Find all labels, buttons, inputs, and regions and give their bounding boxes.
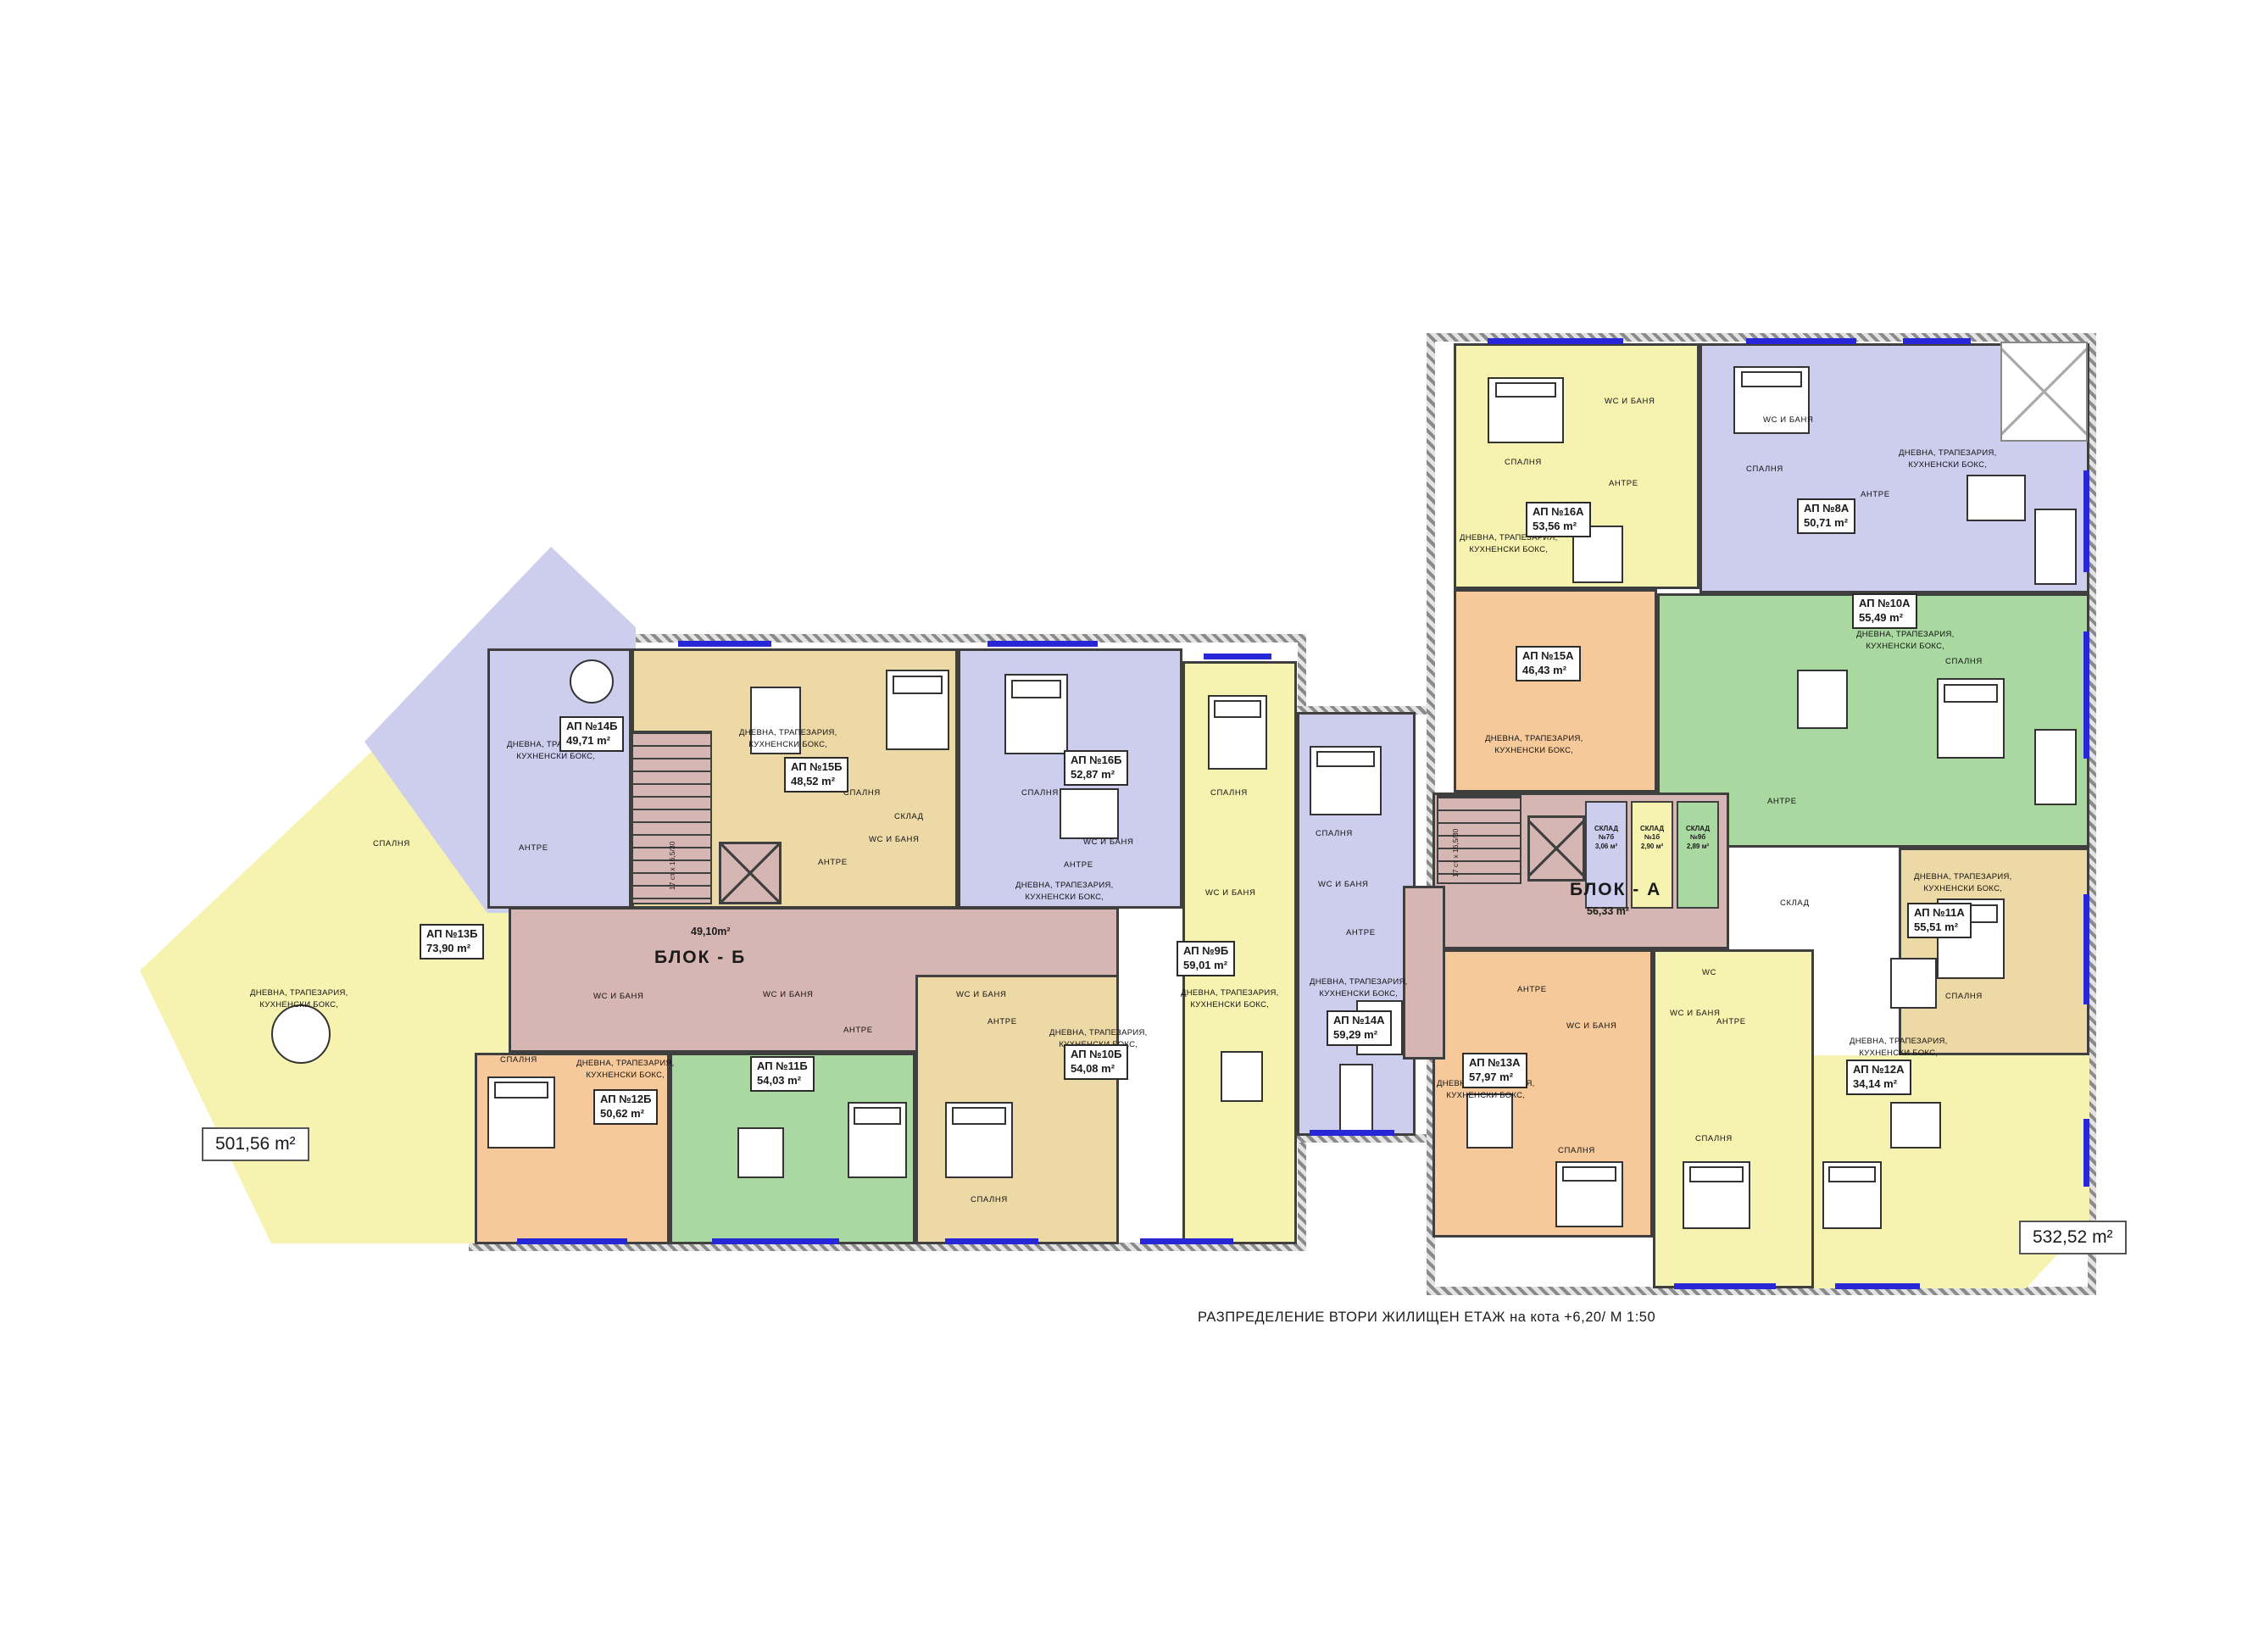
living-line-2: КУХНЕНСКИ БОКС, — [1866, 642, 1944, 651]
apartment-label-a8: АП №8А 50,71 m² — [1797, 498, 1855, 534]
bed-icon — [1004, 674, 1068, 754]
room-label-living: ДНЕВНА, ТРАПЕЗАРИЯ, КУХНЕНСКИ БОКС, — [1181, 987, 1279, 1012]
dining-table-icon — [1797, 670, 1848, 729]
apartment-number: АП №8А — [1804, 502, 1849, 516]
living-line-2: КУХНЕНСКИ БОКС, — [1908, 460, 1987, 470]
living-line-2: КУХНЕНСКИ БОКС, — [1025, 893, 1104, 902]
room-label-bedroom: СПАЛНЯ — [1505, 458, 1542, 467]
living-line-2: КУХНЕНСКИ БОКС, — [1446, 1091, 1525, 1100]
window-strip — [712, 1238, 839, 1244]
room-label-bedroom: СПАЛНЯ — [1210, 788, 1248, 798]
room-label-entry: АНТРЕ — [987, 1017, 1017, 1026]
room-label-living: ДНЕВНА, ТРАПЕЗАРИЯ, КУХНЕНСКИ БОКС, — [1015, 880, 1114, 904]
storage-label: СКЛАД №1б — [1640, 825, 1664, 841]
dining-table-icon — [1221, 1051, 1263, 1102]
terrace-top-right — [2000, 342, 2088, 442]
apartment-number: АП №14А — [1333, 1014, 1385, 1028]
apartment-area: 73,90 m² — [426, 942, 477, 956]
apartment-label-b16: АП №16Б 52,87 m² — [1064, 750, 1128, 786]
room-label-entry: АНТРЕ — [1346, 928, 1376, 937]
stairs-note-block-a: 17 ст х 16,5/30 — [1451, 829, 1460, 877]
living-line-2: КУХНЕНСКИ БОКС, — [1859, 1048, 1938, 1058]
apartment-number: АП №11Б — [757, 1060, 808, 1074]
dining-table-icon — [1967, 475, 2026, 521]
living-line-2: КУХНЕНСКИ БОКС, — [1319, 989, 1398, 998]
room-label-entry: АНТРЕ — [1609, 479, 1638, 488]
room-label-bedroom: СПАЛНЯ — [1945, 657, 1983, 666]
room-label-living: ДНЕВНА, ТРАПЕЗАРИЯ, КУХНЕНСКИ БОКС, — [739, 727, 837, 752]
window-strip — [1835, 1283, 1920, 1289]
total-area-right: 532,52 m² — [2019, 1221, 2127, 1254]
living-line-1: ДНЕВНА, ТРАПЕЗАРИЯ, — [576, 1059, 675, 1068]
living-line-1: ДНЕВНА, ТРАПЕЗАРИЯ, — [250, 988, 348, 998]
room-label-bath: WC И БАНЯ — [1605, 397, 1655, 406]
room-label-living: ДНЕВНА, ТРАПЕЗАРИЯ, КУХНЕНСКИ БОКС, — [1485, 733, 1583, 758]
room-label-living: ДНЕВНА, ТРАПЕЗАРИЯ, КУХНЕНСКИ БОКС, — [1850, 1036, 1948, 1060]
window-strip — [1488, 338, 1623, 344]
window-strip — [1903, 338, 1971, 344]
room-label-living: ДНЕВНА, ТРАПЕЗАРИЯ, КУХНЕНСКИ БОКС, — [250, 987, 348, 1012]
bed-icon — [487, 1076, 555, 1149]
living-line-1: ДНЕВНА, ТРАПЕЗАРИЯ, — [1485, 734, 1583, 743]
apartment-area: 52,87 m² — [1071, 768, 1121, 782]
window-strip — [945, 1238, 1038, 1244]
storage-label: СКЛАД №9б — [1686, 825, 1710, 841]
bed-icon — [1683, 1161, 1750, 1229]
apartment-area: 59,29 m² — [1333, 1028, 1385, 1043]
living-line-1: ДНЕВНА, ТРАПЕЗАРИЯ, — [1899, 448, 1997, 458]
window-strip — [517, 1238, 627, 1244]
apartment-number: АП №12А — [1853, 1063, 1905, 1077]
block-b-label: БЛОК - Б — [654, 948, 746, 968]
window-strip — [2083, 470, 2089, 572]
room-label-entry: АНТРЕ — [1064, 860, 1093, 870]
apartment-area: 50,62 m² — [600, 1107, 651, 1121]
room-label-bath: WC И БАНЯ — [1763, 415, 1813, 425]
sofa-icon — [2034, 509, 2077, 585]
room-label-bedroom: СПАЛНЯ — [843, 788, 881, 798]
window-strip — [987, 641, 1098, 647]
room-label-storage: СКЛАД — [894, 812, 924, 821]
apartment-number: АП №16А — [1533, 505, 1584, 520]
storage-label: СКЛАД №7б — [1594, 825, 1618, 841]
bed-icon — [1488, 377, 1564, 443]
apartment-number: АП №14Б — [566, 720, 617, 734]
room-label-bedroom: СПАЛНЯ — [1746, 464, 1783, 474]
room-label-bedroom: СПАЛНЯ — [1316, 829, 1353, 838]
apartment-area: 59,01 m² — [1183, 959, 1228, 973]
sofa-icon — [1339, 1064, 1373, 1132]
room-label-bedroom: СПАЛНЯ — [500, 1055, 537, 1065]
elevator-block-a-icon — [1527, 815, 1585, 882]
apartment-a15-region — [1454, 589, 1657, 793]
storage-area: 3,06 м² — [1595, 843, 1617, 850]
apartment-center-bottom-region — [1653, 949, 1814, 1288]
corridor-connector — [1403, 886, 1445, 1060]
bed-icon — [945, 1102, 1013, 1178]
apartment-area: 48,52 m² — [791, 775, 842, 789]
room-label-bath: WC И БАНЯ — [1205, 888, 1255, 898]
apartment-label-a10: АП №10А 55,49 m² — [1852, 593, 1917, 629]
storage-area: 2,90 м² — [1641, 843, 1663, 850]
living-line-1: ДНЕВНА, ТРАПЕЗАРИЯ, — [1914, 872, 2012, 882]
dining-table-icon — [1060, 788, 1119, 839]
living-line-2: КУХНЕНСКИ БОКС, — [1923, 884, 2002, 893]
apartment-number: АП №10Б — [1071, 1048, 1121, 1062]
apartment-number: АП №13Б — [426, 927, 477, 942]
apartment-label-b12: АП №12Б 50,62 m² — [593, 1089, 658, 1125]
room-label-bedroom: СПАЛНЯ — [1695, 1134, 1733, 1143]
living-line-1: ДНЕВНА, ТРАПЕЗАРИЯ, — [1015, 881, 1114, 890]
apartment-label-a12: АП №12А 34,14 m² — [1846, 1060, 1911, 1095]
storage-room-9b: СКЛАД №9б 2,89 м² — [1677, 801, 1719, 909]
room-label-entry: АНТРЕ — [519, 843, 548, 853]
living-line-2: КУХНЕНСКИ БОКС, — [1494, 746, 1573, 755]
bed-icon — [1208, 695, 1267, 770]
room-label-bath: WC И БАНЯ — [1670, 1009, 1720, 1018]
sofa-icon — [2034, 729, 2077, 805]
room-label-bath: WC И БАНЯ — [1083, 837, 1133, 847]
living-line-2: КУХНЕНСКИ БОКС, — [259, 1000, 338, 1010]
living-line-2: КУХНЕНСКИ БОКС, — [516, 752, 595, 761]
window-strip — [1140, 1238, 1233, 1244]
living-line-2: КУХНЕНСКИ БОКС, — [1469, 545, 1548, 554]
room-label-living: ДНЕВНА, ТРАПЕЗАРИЯ, КУХНЕНСКИ БОКС, — [576, 1058, 675, 1082]
bed-icon — [1310, 746, 1382, 815]
room-label-bedroom: СПАЛНЯ — [1558, 1146, 1595, 1155]
window-strip — [2083, 1119, 2089, 1187]
apartment-area: 57,97 m² — [1469, 1071, 1521, 1085]
room-label-bath: WC И БАНЯ — [593, 992, 643, 1001]
apartment-label-b11: АП №11Б 54,03 m² — [750, 1056, 815, 1092]
apartment-number: АП №11А — [1914, 906, 1965, 921]
apartment-label-b14: АП №14Б 49,71 m² — [559, 716, 624, 752]
room-label-bedroom: СПАЛНЯ — [971, 1195, 1008, 1204]
room-label-bath: WC И БАНЯ — [1318, 880, 1368, 889]
apartment-label-a14: АП №14А 59,29 m² — [1327, 1010, 1392, 1046]
apartment-number: АП №12Б — [600, 1093, 651, 1107]
living-line-1: ДНЕВНА, ТРАПЕЗАРИЯ, — [739, 728, 837, 737]
window-strip — [1310, 1130, 1394, 1136]
room-label-entry: АНТРЕ — [1767, 797, 1797, 806]
apartment-label-a11: АП №11А 55,51 m² — [1907, 903, 1972, 938]
window-strip — [1204, 654, 1271, 659]
apartment-number: АП №13А — [1469, 1056, 1521, 1071]
bed-icon — [1937, 678, 2005, 759]
living-line-1: ДНЕВНА, ТРАПЕЗАРИЯ, — [1181, 988, 1279, 998]
apartment-area: 55,51 m² — [1914, 921, 1965, 935]
living-line-2: КУХНЕНСКИ БОКС, — [748, 740, 827, 749]
room-label-bedroom: СПАЛНЯ — [1945, 992, 1983, 1001]
round-table-icon — [271, 1004, 331, 1064]
window-strip — [678, 641, 771, 647]
living-line-1: ДНЕВНА, ТРАПЕЗАРИЯ, — [1850, 1037, 1948, 1046]
apartment-label-b9: АП №9Б 59,01 m² — [1177, 941, 1235, 976]
room-label-bedroom: СПАЛНЯ — [1021, 788, 1059, 798]
round-table-icon — [570, 659, 614, 704]
window-strip — [1674, 1283, 1776, 1289]
apartment-label-b13: АП №13Б 73,90 m² — [420, 924, 484, 959]
window-strip — [1746, 338, 1856, 344]
apartment-label-a13: АП №13А 57,97 m² — [1462, 1053, 1527, 1088]
elevator-block-b-icon — [719, 842, 782, 904]
room-label-living: ДНЕВНА, ТРАПЕЗАРИЯ, КУХНЕНСКИ БОКС, — [1899, 448, 1997, 472]
apartment-area: 49,71 m² — [566, 734, 617, 748]
apartment-area: 54,03 m² — [757, 1074, 808, 1088]
room-label-bath: WC И БАНЯ — [956, 990, 1006, 999]
room-label-entry: АНТРЕ — [1716, 1017, 1746, 1026]
apartment-label-b10: АП №10Б 54,08 m² — [1064, 1044, 1128, 1080]
corridor-area-block-b: 49,10m² — [691, 926, 731, 937]
living-line-1: ДНЕВНА, ТРАПЕЗАРИЯ, — [1856, 630, 1955, 639]
dining-table-icon — [1890, 1102, 1941, 1149]
room-label-storage: СКЛАД — [1780, 898, 1810, 908]
bed-icon — [886, 670, 949, 750]
window-strip — [2083, 894, 2089, 1004]
room-label-bedroom: СПАЛНЯ — [373, 839, 410, 848]
apartment-area: 55,49 m² — [1859, 611, 1911, 626]
living-line-2: КУХНЕНСКИ БОКС, — [586, 1071, 665, 1080]
apartment-label-a16: АП №16А 53,56 m² — [1526, 502, 1591, 537]
room-label-entry: АНТРЕ — [1517, 985, 1547, 994]
living-line-1: ДНЕВНА, ТРАПЕЗАРИЯ, — [1310, 977, 1408, 987]
floor-plan-canvas: 17 ст х 16,5/30 17 ст х 16,5/30 СКЛАД №7… — [0, 0, 2253, 1652]
living-line-1: ДНЕВНА, ТРАПЕЗАРИЯ, — [1049, 1028, 1148, 1037]
apartment-number: АП №15Б — [791, 760, 842, 775]
room-label-bath: WC И БАНЯ — [763, 990, 813, 999]
apartment-area: 34,14 m² — [1853, 1077, 1905, 1092]
block-a-label: БЛОК - А — [1570, 880, 1661, 900]
apartment-number: АП №15А — [1522, 649, 1574, 664]
apartment-label-a15: АП №15А 46,43 m² — [1516, 646, 1581, 681]
room-label-entry: АНТРЕ — [818, 858, 848, 867]
dining-table-icon — [737, 1127, 784, 1178]
drawing-caption: РАЗПРЕДЕЛЕНИЕ ВТОРИ ЖИЛИЩЕН ЕТАЖ на кота… — [1198, 1310, 1655, 1326]
room-label-living: ДНЕВНА, ТРАПЕЗАРИЯ, КУХНЕНСКИ БОКС, — [1310, 976, 1408, 1001]
apartment-number: АП №16Б — [1071, 754, 1121, 768]
room-label-entry: АНТРЕ — [843, 1026, 873, 1035]
room-label-bath: WC И БАНЯ — [1566, 1021, 1616, 1031]
storage-area: 2,89 м² — [1687, 843, 1709, 850]
apartment-label-b15: АП №15Б 48,52 m² — [784, 757, 848, 793]
room-label-wc: WC — [1702, 968, 1716, 977]
corridor-area-block-a: 56,33 m² — [1587, 905, 1629, 917]
apartment-area: 54,08 m² — [1071, 1062, 1121, 1076]
dining-table-icon — [1890, 958, 1937, 1009]
total-area-left: 501,56 m² — [202, 1127, 309, 1161]
apartment-number: АП №9Б — [1183, 944, 1228, 959]
window-strip — [2083, 631, 2089, 759]
room-label-entry: АНТРЕ — [1861, 490, 1890, 499]
apartment-area: 46,43 m² — [1522, 664, 1574, 678]
bed-icon — [848, 1102, 907, 1178]
apartment-area: 50,71 m² — [1804, 516, 1849, 531]
room-label-living: ДНЕВНА, ТРАПЕЗАРИЯ, КУХНЕНСКИ БОКС, — [1914, 871, 2012, 896]
bed-icon — [1555, 1161, 1623, 1227]
bed-icon — [1822, 1161, 1882, 1229]
room-label-living: ДНЕВНА, ТРАПЕЗАРИЯ, КУХНЕНСКИ БОКС, — [1856, 629, 1955, 654]
room-label-bath: WC И БАНЯ — [869, 835, 919, 844]
living-line-2: КУХНЕНСКИ БОКС, — [1190, 1000, 1269, 1010]
apartment-area: 53,56 m² — [1533, 520, 1584, 534]
staircase-block-a — [1437, 795, 1521, 884]
stairs-note-block-b: 17 ст х 16,5/30 — [668, 842, 676, 890]
apartment-number: АП №10А — [1859, 597, 1911, 611]
